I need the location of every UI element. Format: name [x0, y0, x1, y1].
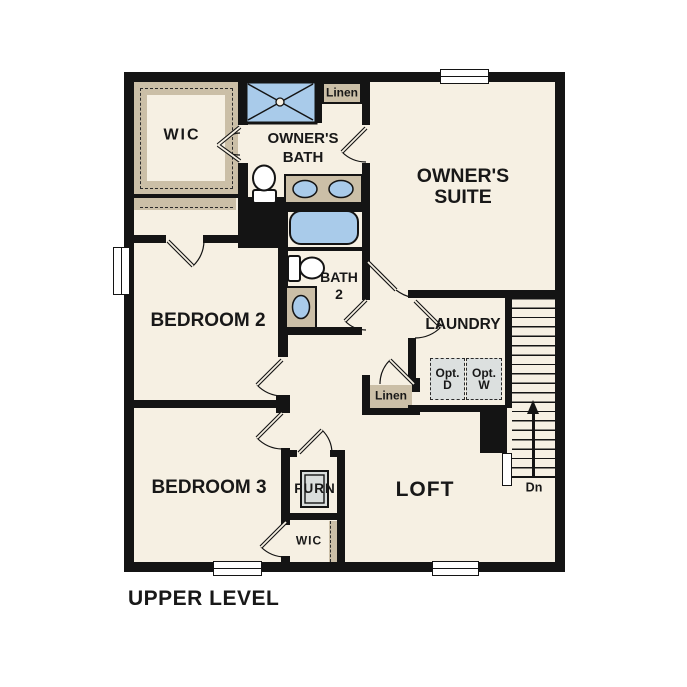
owners-suite-line1: OWNER'S	[417, 166, 509, 187]
door-arc	[342, 152, 366, 162]
owners-suite-label: OWNER'S SUITE	[417, 166, 509, 208]
stairs-dn-label: Dn	[526, 481, 543, 494]
bath2-line1: BATH	[320, 269, 358, 286]
owners-bath-line1: OWNER'S	[267, 129, 338, 148]
sink-icon	[286, 287, 316, 328]
loft-label: LOFT	[396, 479, 455, 501]
toilet-icon	[253, 166, 276, 204]
floor-plan: Opt. D Opt. W WIC OWNER'S BATH Linen OWN…	[0, 0, 687, 687]
door-arc	[257, 385, 282, 396]
opt-dryer-line2: D	[443, 379, 452, 392]
door-arc	[257, 438, 282, 449]
linen-top-label: Linen	[326, 87, 358, 100]
door-arc	[345, 321, 366, 330]
fixtures-and-doors-layer	[0, 0, 687, 687]
bedroom2-label: BEDROOM 2	[150, 311, 265, 331]
door-arc	[322, 430, 332, 453]
bath2-label: BATH 2	[320, 269, 358, 303]
optional-washer-box: Opt. W	[466, 358, 502, 400]
owners-bath-line2: BATH	[267, 148, 338, 167]
furn-label: FURN	[294, 482, 336, 496]
laundry-label: LAUNDRY	[425, 317, 500, 333]
double-sink-vanity-icon	[285, 175, 362, 203]
owners-suite-line2: SUITE	[417, 187, 509, 208]
bath2-line2: 2	[320, 286, 358, 303]
page-title: UPPER LEVEL	[128, 587, 279, 611]
door-arc	[380, 360, 390, 384]
door-arc	[396, 290, 411, 297]
toilet-icon	[288, 256, 324, 281]
optional-dryer-box: Opt. D	[430, 358, 465, 400]
shower-icon	[246, 82, 316, 123]
bedroom3-label: BEDROOM 3	[151, 478, 266, 498]
door-arc	[193, 241, 204, 266]
opt-washer-line2: W	[478, 379, 489, 392]
wic-bottom-label: WIC	[296, 535, 322, 548]
owners-bath-label: OWNER'S BATH	[267, 129, 338, 167]
door-arc	[261, 547, 286, 557]
linen-mid-label: Linen	[375, 390, 407, 403]
wic-top-label: WIC	[163, 128, 200, 145]
bathtub-icon	[290, 211, 358, 244]
